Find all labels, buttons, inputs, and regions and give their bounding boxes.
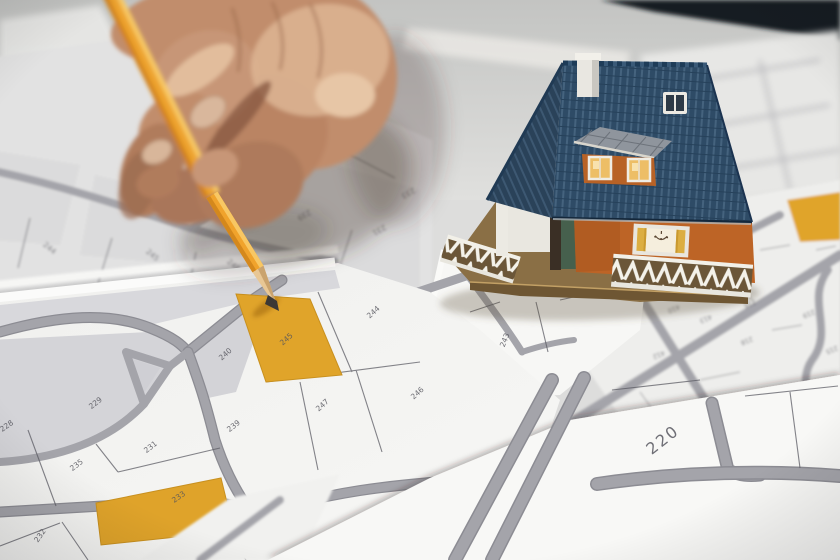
roof-skylight: [663, 92, 687, 114]
main-window: [632, 224, 690, 258]
chimney: [575, 53, 601, 97]
cadastral-photo: Close-up photo: a hand holds a yellow pe…: [0, 0, 840, 560]
dormer-window-left: [589, 157, 611, 179]
dormer-window-right: [628, 159, 650, 181]
green-door: [561, 215, 576, 269]
corner-pillar: [496, 202, 508, 256]
photo-scene: Close-up photo: a hand holds a yellow pe…: [0, 0, 840, 560]
